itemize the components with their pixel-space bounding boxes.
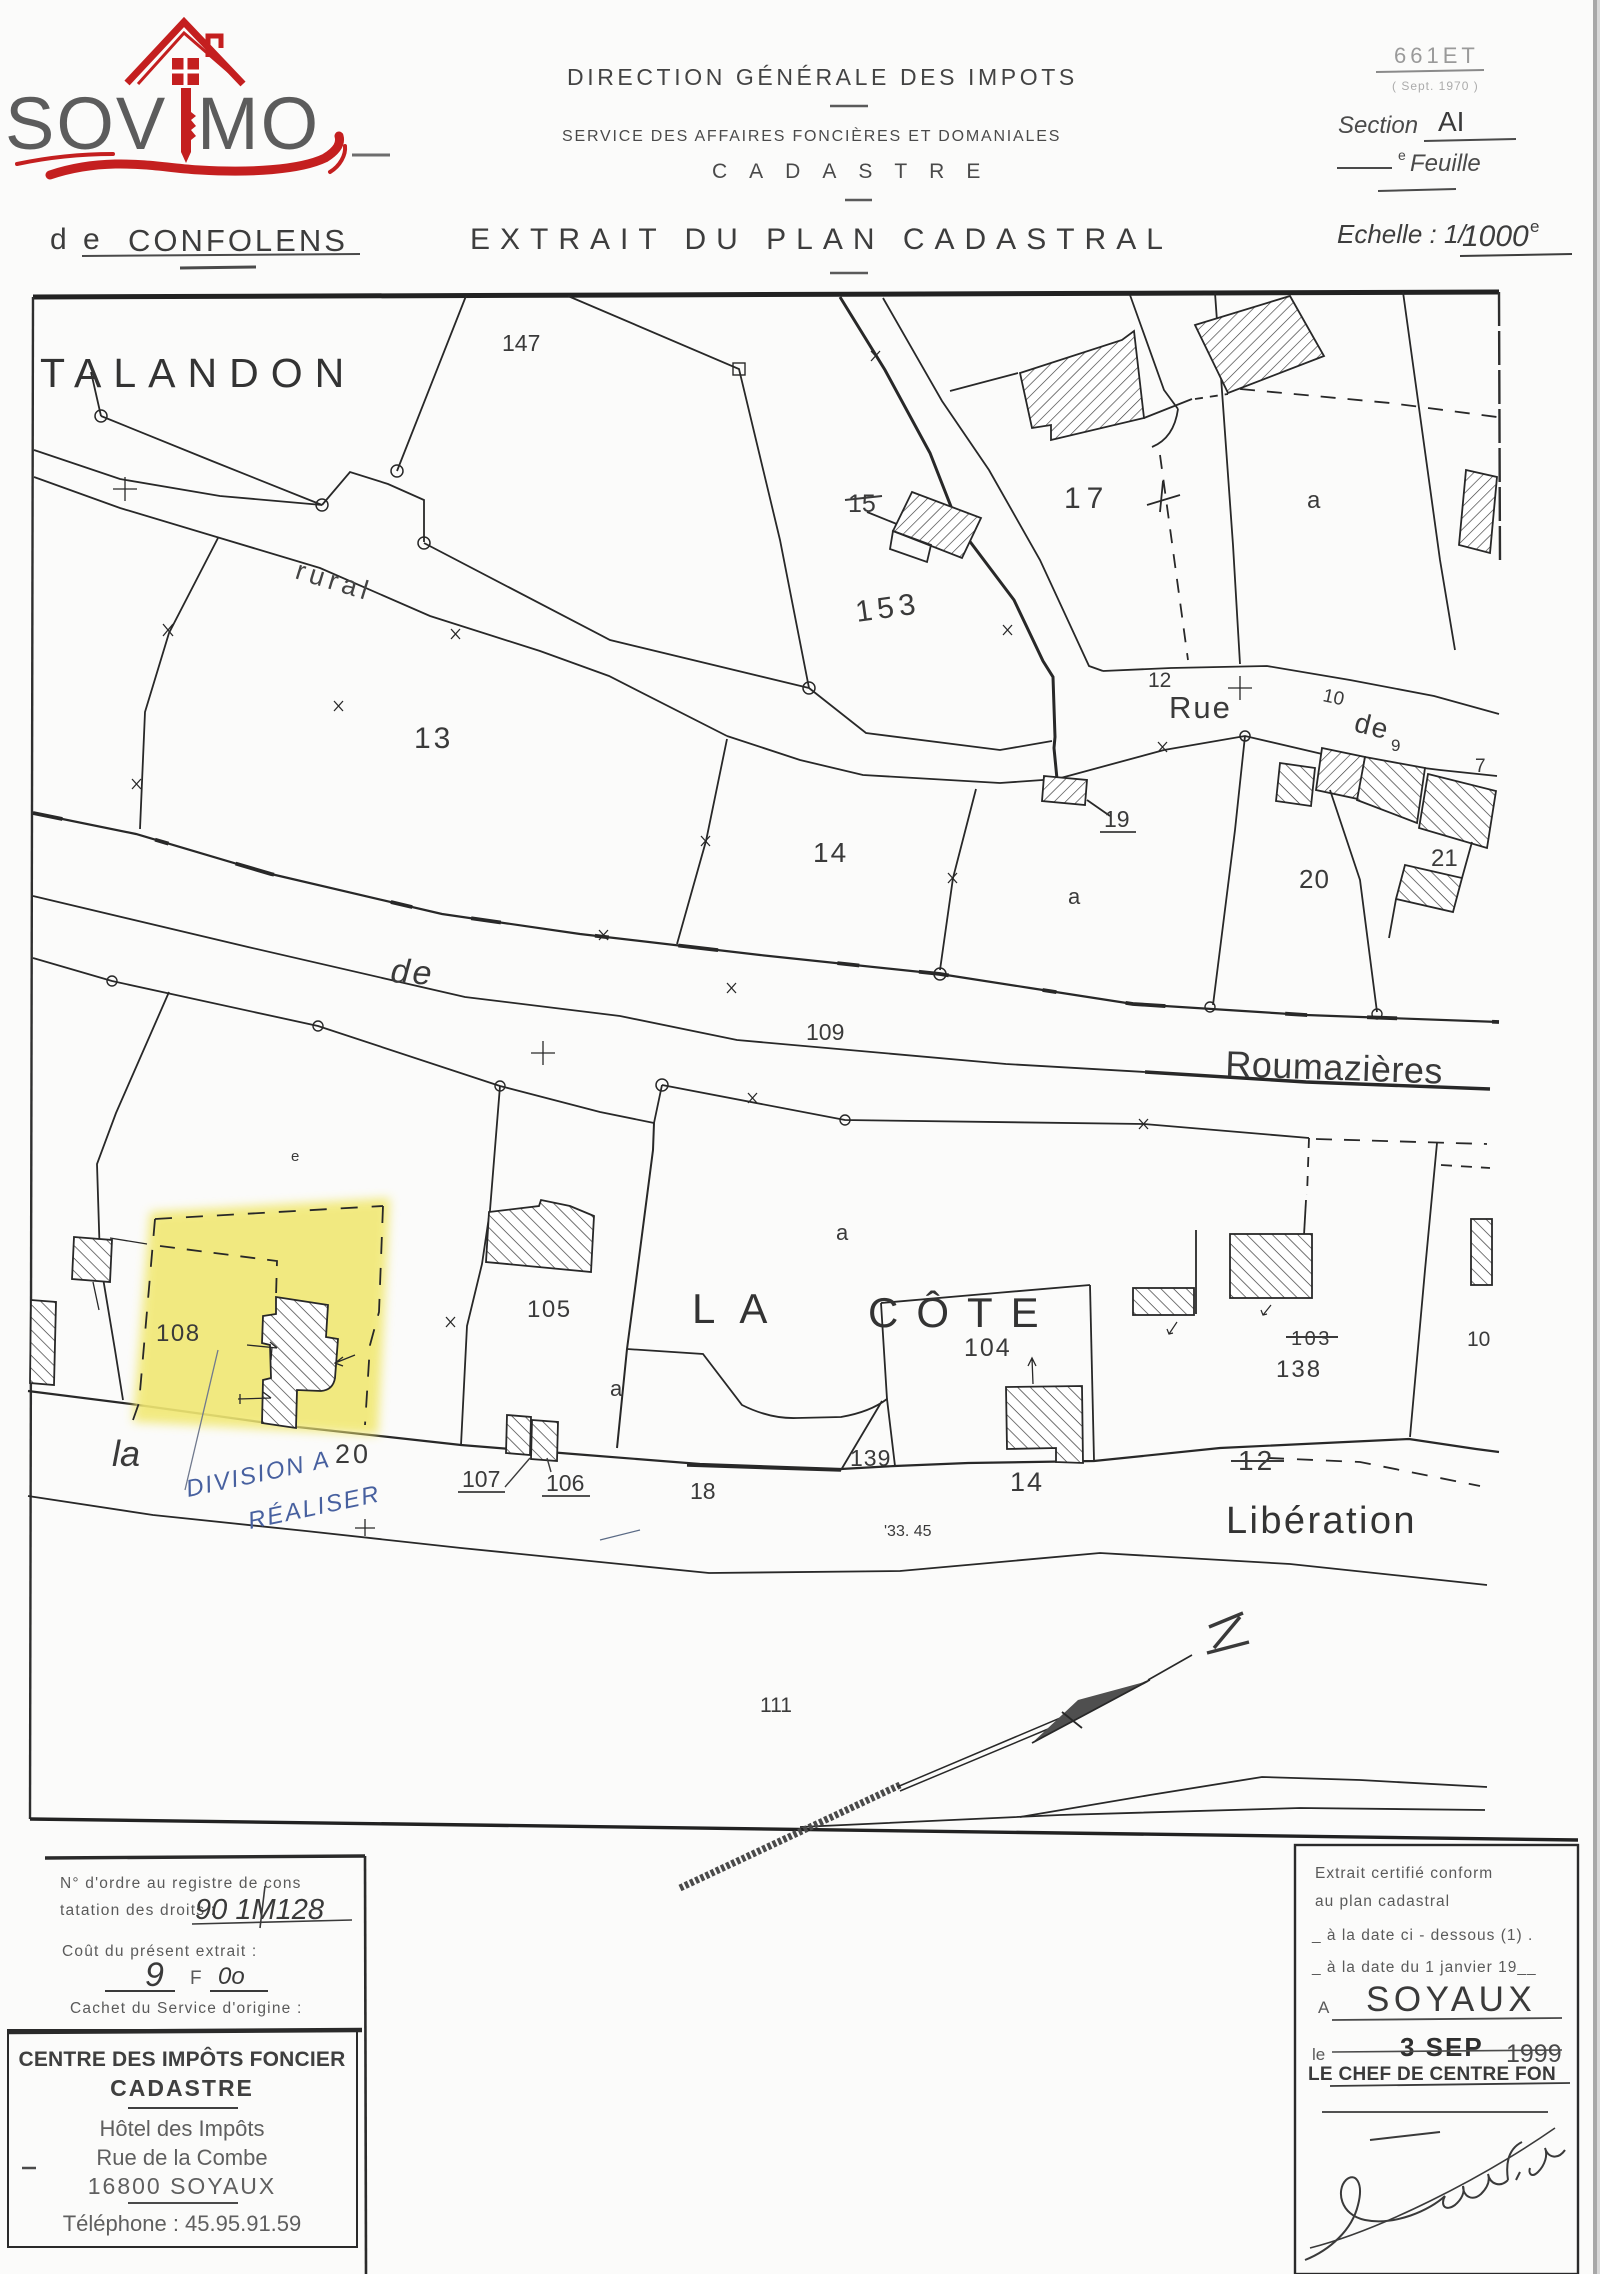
svg-text:10: 10 bbox=[1467, 1328, 1490, 1351]
svg-text:EXTRAIT DU PLAN CADASTRAL: EXTRAIT DU PLAN CADASTRAL bbox=[470, 223, 1173, 256]
svg-text:21: 21 bbox=[1431, 845, 1458, 872]
svg-text:d e: d e bbox=[50, 223, 104, 256]
svg-text:LA: LA bbox=[692, 1285, 791, 1332]
svg-text:14: 14 bbox=[1010, 1467, 1044, 1497]
svg-text:la: la bbox=[112, 1433, 140, 1474]
svg-text:139: 139 bbox=[850, 1445, 891, 1471]
svg-text:13: 13 bbox=[414, 722, 453, 755]
svg-text:108: 108 bbox=[156, 1320, 201, 1347]
svg-text:MO: MO bbox=[197, 82, 320, 165]
svg-text:9: 9 bbox=[145, 1956, 164, 1994]
svg-text:a: a bbox=[1307, 487, 1321, 514]
svg-text:e: e bbox=[1398, 147, 1406, 163]
svg-text:CONFOLENS: CONFOLENS bbox=[128, 223, 348, 258]
svg-text:SOYAUX: SOYAUX bbox=[1366, 1980, 1536, 2019]
svg-text:e: e bbox=[291, 1148, 299, 1165]
svg-text:109: 109 bbox=[806, 1019, 844, 1045]
svg-text:111: 111 bbox=[760, 1694, 792, 1717]
svg-text:( Sept. 1970 ): ( Sept. 1970 ) bbox=[1392, 79, 1479, 93]
svg-text:1000: 1000 bbox=[1462, 220, 1529, 253]
svg-text:_ à la date ci - dessous (1): _ à la date ci - dessous (1) . bbox=[1311, 1927, 1533, 1944]
svg-text:a: a bbox=[610, 1376, 623, 1401]
svg-text:19: 19 bbox=[1104, 806, 1130, 832]
svg-text:DIRECTION GÉNÉRALE DES IMPOTS: DIRECTION GÉNÉRALE DES IMPOTS bbox=[567, 64, 1078, 90]
svg-text:Roumazières: Roumazières bbox=[1225, 1043, 1444, 1092]
svg-text:F: F bbox=[190, 1968, 202, 1989]
svg-text:138: 138 bbox=[1276, 1356, 1322, 1383]
svg-text:_ à la date du 1 janvier 19_: _ à la date du 1 janvier 19__ bbox=[1311, 1959, 1537, 1976]
svg-text:CENTRE DES IMPÔTS FONCIER: CENTRE DES IMPÔTS FONCIER bbox=[18, 2047, 345, 2071]
svg-text:e: e bbox=[1530, 217, 1539, 236]
svg-text:105: 105 bbox=[527, 1296, 572, 1323]
svg-text:7: 7 bbox=[1475, 756, 1486, 777]
svg-text:CADASTRE: CADASTRE bbox=[712, 160, 1002, 183]
svg-text:le: le bbox=[1312, 2045, 1325, 2064]
svg-text:Extrait certifié conform: Extrait certifié conform bbox=[1315, 1865, 1493, 1882]
svg-text:A: A bbox=[1318, 1998, 1330, 2017]
svg-text:Téléphone : 45.95.91.59: Téléphone : 45.95.91.59 bbox=[63, 2211, 302, 2236]
svg-text:AI: AI bbox=[1438, 106, 1464, 137]
svg-text:Rue: Rue bbox=[1169, 690, 1232, 725]
svg-text:14: 14 bbox=[813, 837, 848, 868]
svg-text:104: 104 bbox=[964, 1334, 1012, 1362]
svg-text:a: a bbox=[836, 1220, 849, 1245]
svg-text:CÔTE: CÔTE bbox=[868, 1289, 1057, 1336]
svg-text:15: 15 bbox=[848, 490, 876, 518]
svg-text:18: 18 bbox=[690, 1478, 716, 1504]
svg-text:Rue de la Combe: Rue de la Combe bbox=[96, 2145, 267, 2170]
svg-text:10: 10 bbox=[1321, 685, 1346, 710]
svg-text:a: a bbox=[1068, 884, 1081, 909]
svg-text:107: 107 bbox=[462, 1466, 500, 1492]
svg-text:SOV: SOV bbox=[5, 82, 167, 165]
svg-text:'33. 45: '33. 45 bbox=[884, 1523, 932, 1540]
svg-text:106: 106 bbox=[546, 1470, 584, 1496]
svg-text:Hôtel des Impôts: Hôtel des Impôts bbox=[99, 2116, 264, 2141]
svg-text:20: 20 bbox=[335, 1439, 371, 1469]
svg-text:Echelle : 1/: Echelle : 1/ bbox=[1337, 219, 1468, 249]
svg-text:661ET: 661ET bbox=[1394, 43, 1479, 68]
svg-text:3 SEP: 3 SEP bbox=[1400, 2032, 1484, 2062]
svg-text:Feuille: Feuille bbox=[1410, 150, 1481, 177]
svg-text:Cachet du Service d'origine :: Cachet du Service d'origine : bbox=[70, 2000, 302, 2017]
svg-text:12: 12 bbox=[1148, 669, 1171, 692]
svg-text:TALANDON: TALANDON bbox=[40, 350, 356, 396]
svg-text:9: 9 bbox=[1391, 736, 1400, 755]
svg-text:LE CHEF DE CENTRE FON: LE CHEF DE CENTRE FON bbox=[1308, 2064, 1556, 2085]
svg-text:au plan cadastral: au plan cadastral bbox=[1315, 1893, 1450, 1910]
svg-text:0o: 0o bbox=[218, 1963, 245, 1990]
svg-text:17: 17 bbox=[1064, 482, 1109, 515]
svg-text:103: 103 bbox=[1291, 1328, 1332, 1350]
svg-text:16800 SOYAUX: 16800 SOYAUX bbox=[88, 2173, 277, 2199]
svg-text:147: 147 bbox=[502, 330, 540, 356]
svg-text:tatation des droits :: tatation des droits : bbox=[60, 1902, 216, 1919]
svg-text:Libération: Libération bbox=[1226, 1500, 1417, 1542]
svg-text:SERVICE DES AFFAIRES FONCIÈ: SERVICE DES AFFAIRES FONCIÈRES ET DOMANI… bbox=[562, 126, 1061, 145]
svg-text:CADASTRE: CADASTRE bbox=[110, 2075, 254, 2101]
svg-text:Section: Section bbox=[1338, 112, 1418, 139]
svg-text:20: 20 bbox=[1299, 864, 1330, 894]
svg-text:de: de bbox=[389, 952, 435, 993]
